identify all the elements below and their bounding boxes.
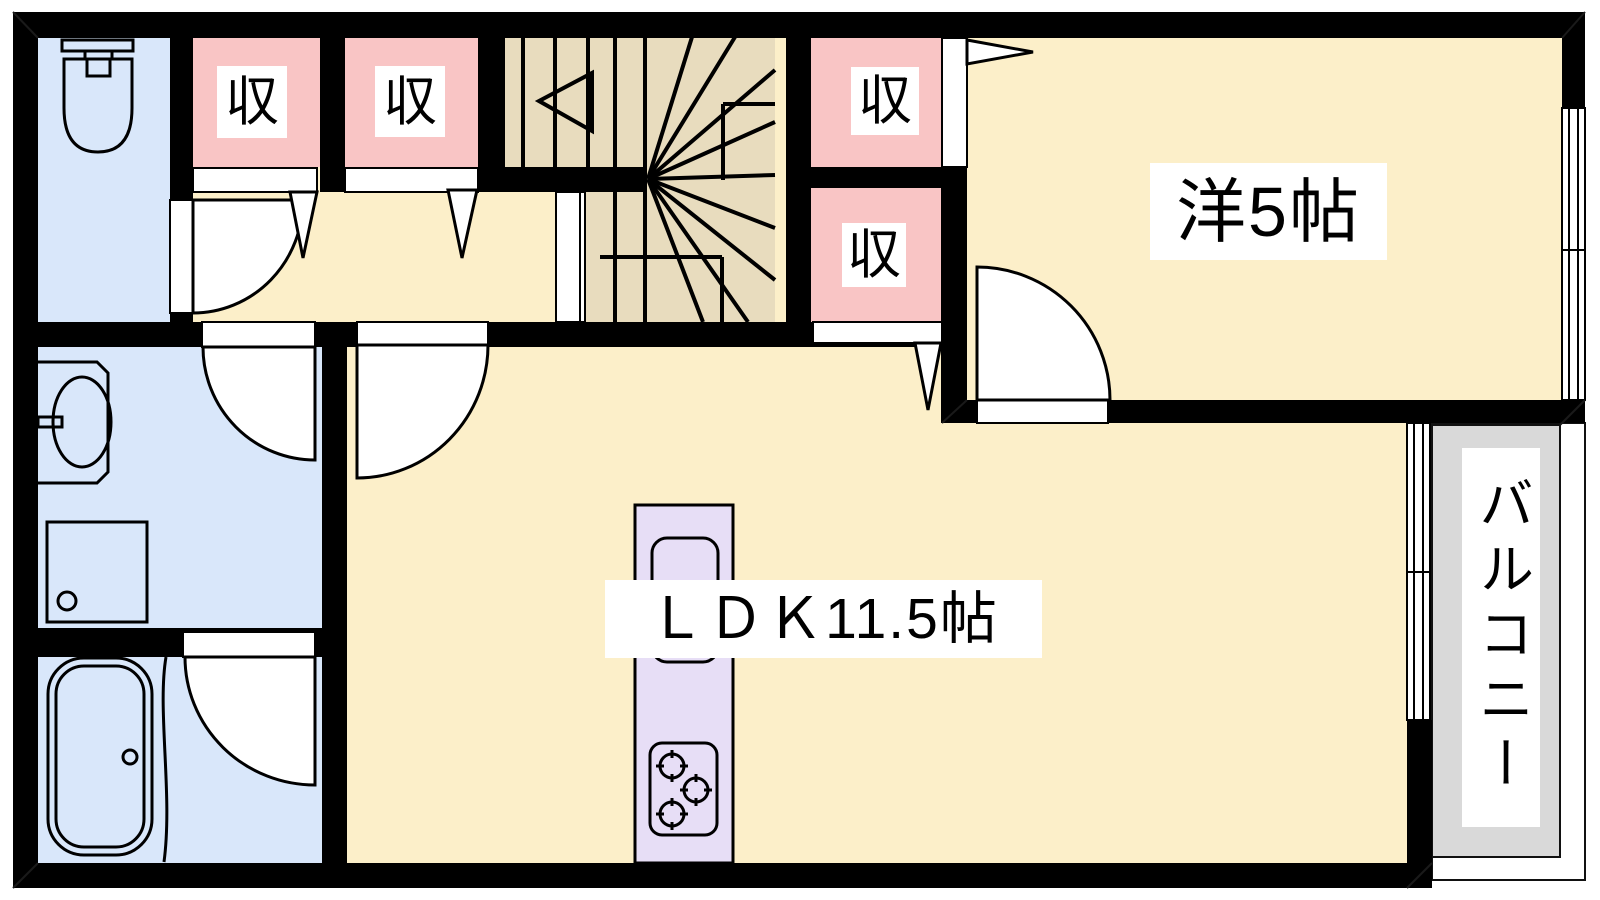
western-room-window [1562,108,1585,400]
closet-4-door-strip [813,322,942,343]
ldk-door-opening [357,322,488,347]
western-room-label: 洋5帖 [1150,163,1387,260]
toilet-room-floor [38,38,170,322]
balcony-window [1407,423,1430,720]
western-room-door-opening [977,400,1108,423]
closet-4-label: 収 [842,223,906,287]
toilet-door-opening [170,200,193,313]
bathroom-door-opening [183,632,315,657]
closet-3-door-strip [942,38,967,167]
balcony-label: バルコニー [1462,448,1540,827]
floor-plan: 収 収 収 収 洋5帖 ＬＤＫ11.5帖 バルコニー [0,0,1600,900]
closet-2-label: 収 [375,66,445,137]
closet-3-label: 収 [851,67,919,135]
ldk-label: ＬＤＫ11.5帖 [605,580,1042,658]
washroom-door-opening [202,322,315,347]
kitchen-counter [635,505,733,863]
closet-2-door-strip [345,168,478,192]
closet-1-label: 収 [217,66,287,138]
closet-1-door-strip [193,168,317,192]
